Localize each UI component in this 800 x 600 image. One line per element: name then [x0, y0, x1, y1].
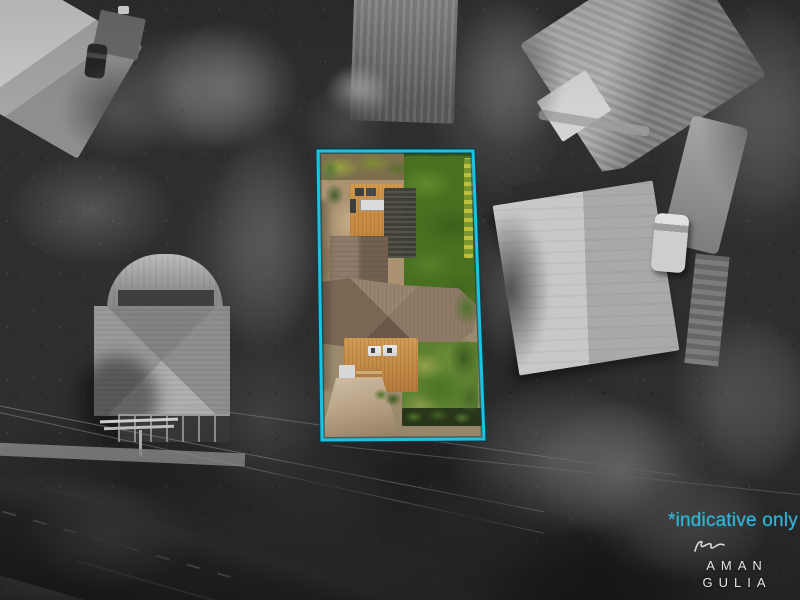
brand-name-line2: GULIA: [685, 574, 783, 591]
brand-name-line1: AMAN: [685, 557, 783, 574]
signature-icon: [691, 536, 727, 556]
aerial-property-photo: *indicative only AMAN GULIA: [0, 0, 800, 600]
agent-brand-logo: AMAN GULIA: [685, 536, 783, 591]
indicative-only-watermark: *indicative only: [668, 510, 798, 532]
